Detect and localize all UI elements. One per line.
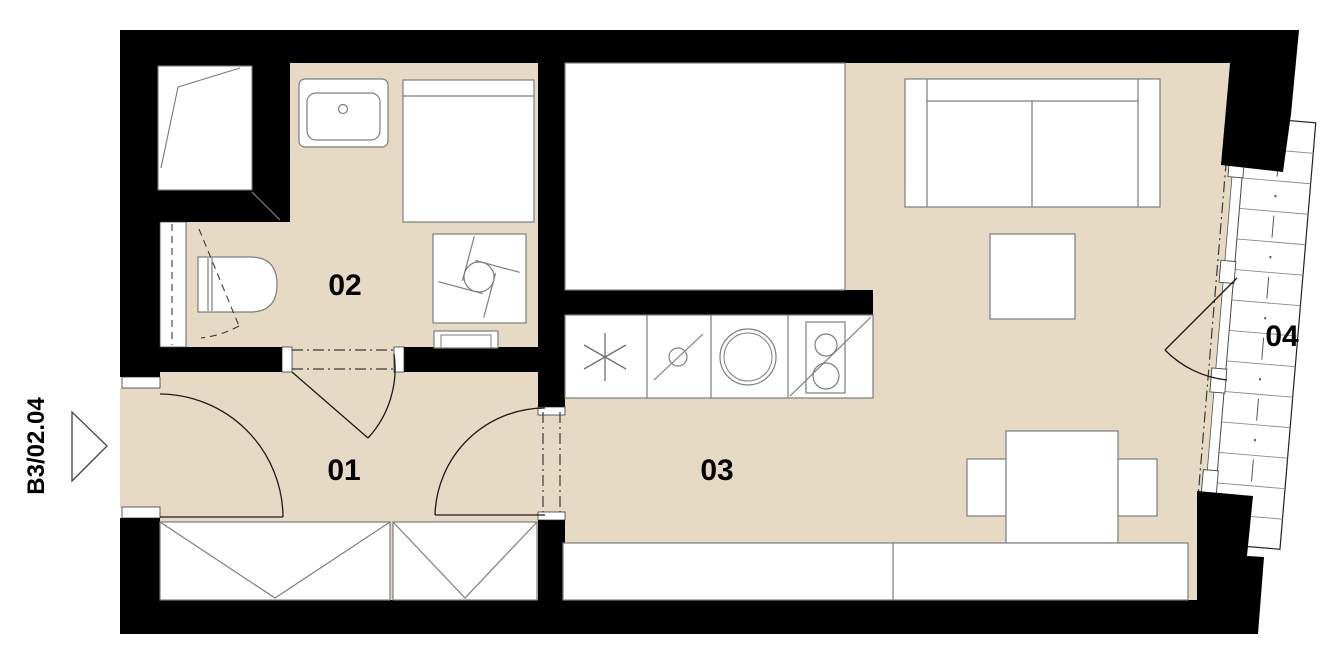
window-mullion: [1219, 260, 1236, 283]
unit-label: B3/02.04: [23, 397, 50, 495]
bed: [565, 63, 845, 290]
room-label-03: 03: [700, 454, 733, 487]
wall-bathroom-hall-right: [404, 347, 538, 372]
washing-machine: [433, 234, 526, 323]
wall-hall-living-stub: [538, 520, 565, 600]
installation-shaft: [160, 222, 186, 347]
living-door-jamb-bottom: [538, 512, 565, 520]
towel-radiator: [434, 331, 498, 348]
room-label-02: 02: [328, 269, 361, 302]
room-label-01: 01: [327, 454, 360, 487]
entrance-jamb-bottom: [122, 507, 160, 518]
shower: [158, 66, 252, 190]
wall-bottom: [120, 600, 1164, 634]
chair-left: [967, 459, 1006, 516]
wardrobe-left: [160, 522, 390, 600]
window-mullion: [1201, 470, 1218, 495]
washbasin-bowl: [307, 93, 380, 140]
wardrobe-right: [393, 522, 537, 600]
window-mullion: [1210, 368, 1227, 393]
wall-bathroom-hall-left: [120, 347, 282, 372]
dining-table: [1006, 431, 1118, 543]
washbasin-tap-icon: [339, 105, 348, 114]
bathroom-door-jamb-left: [282, 347, 292, 372]
toilet: [198, 257, 277, 312]
floor-plan-svg: 01 02 03 04 B3/02.04: [0, 0, 1343, 670]
entrance-jamb-top: [122, 377, 160, 388]
coffee-table: [990, 234, 1075, 319]
bathtub: [403, 80, 534, 222]
wall-bathroom-living: [538, 30, 565, 360]
wall-kitchen-stub: [565, 290, 873, 315]
wall-left-upper: [120, 30, 160, 377]
chair-right: [1118, 459, 1157, 516]
wall-hall-living-upper: [538, 347, 565, 407]
entrance-threshold: [120, 388, 161, 508]
sideboard: [563, 543, 1188, 600]
room-label-04: 04: [1265, 320, 1299, 353]
floor-plan: 01 02 03 04 B3/02.04: [0, 0, 1343, 670]
